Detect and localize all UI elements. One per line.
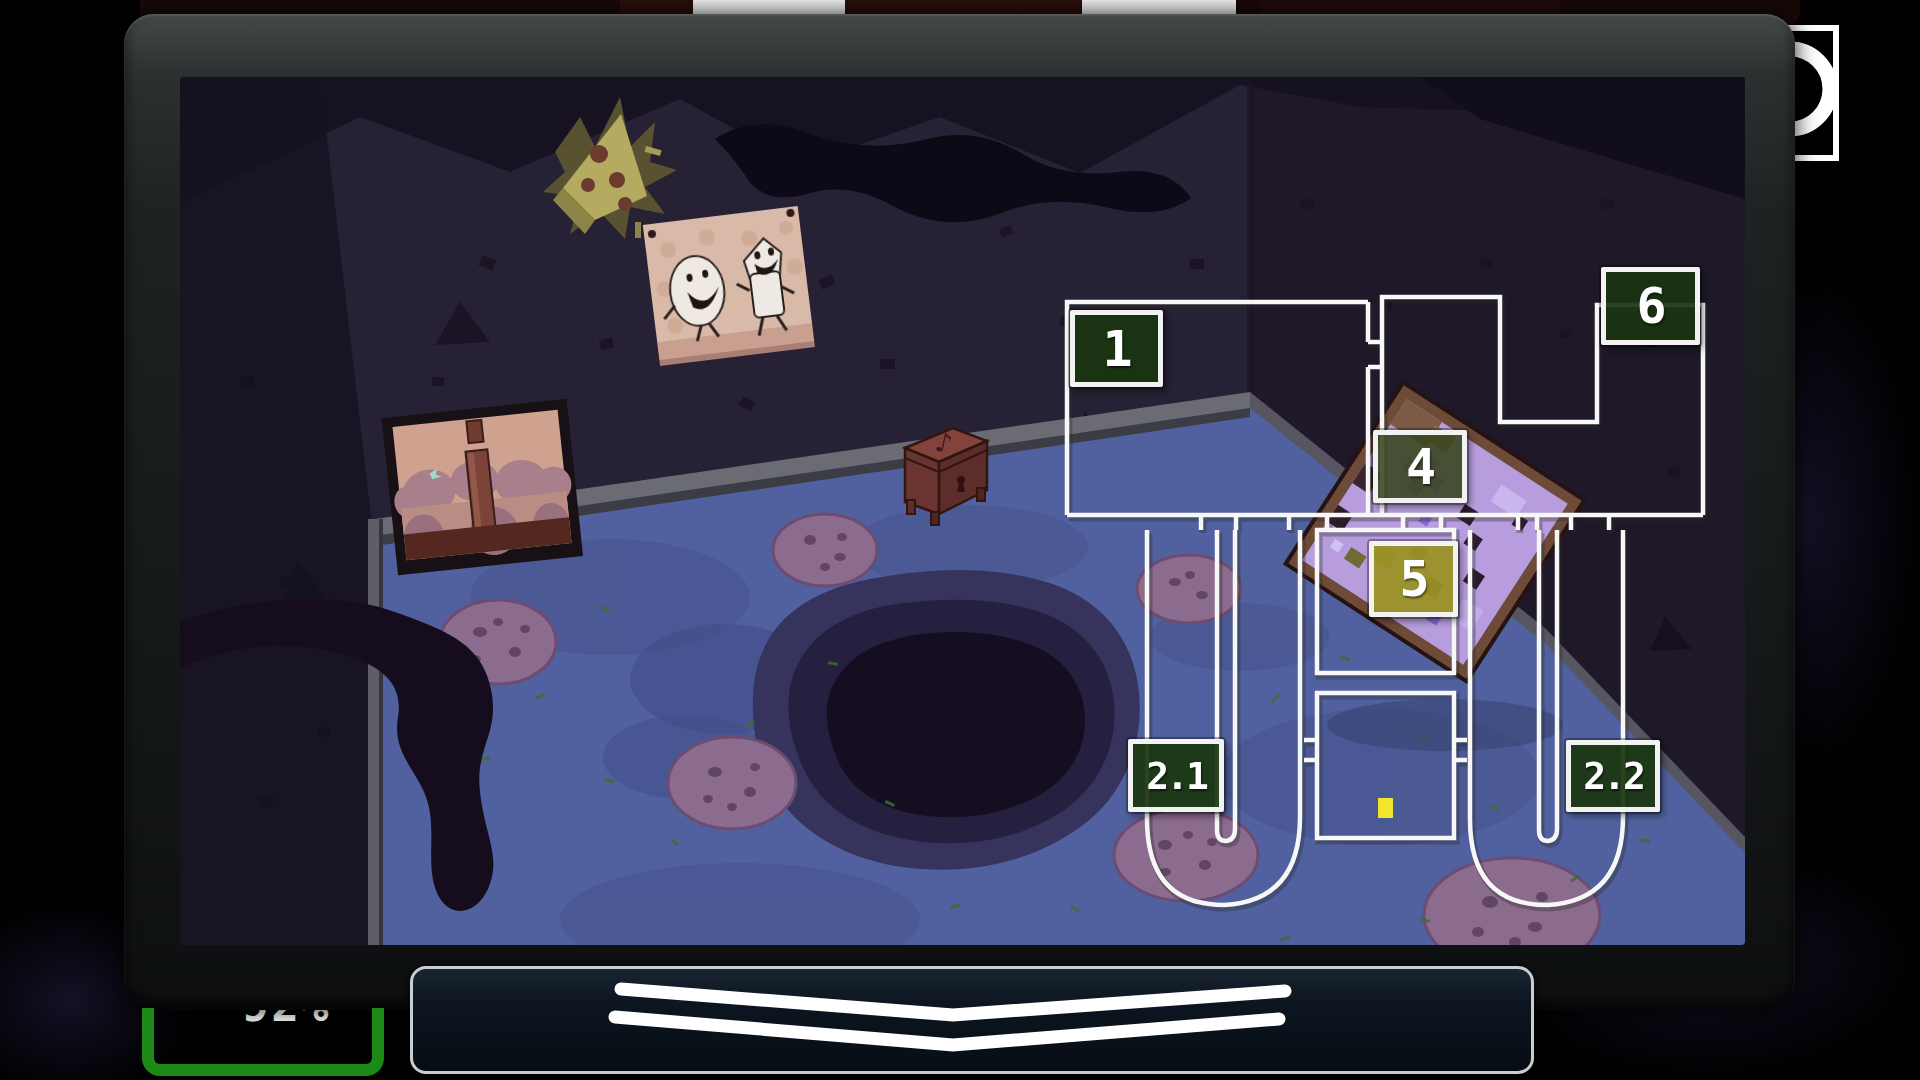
camera-button-4[interactable]: 4 (1373, 430, 1467, 503)
camera-button-6[interactable]: 6 (1601, 267, 1700, 345)
camera-screen: ♪ (180, 77, 1745, 945)
camera-label-text: 1 (1102, 320, 1130, 378)
game-root: 92% (0, 0, 1920, 1080)
player-marker (1378, 798, 1393, 818)
camera-label-text: 2.1 (1146, 754, 1206, 798)
camera-flip-bar[interactable] (410, 966, 1534, 1074)
double-chevron-down-icon (413, 969, 1525, 1065)
power-indicator-bracket (142, 1008, 384, 1076)
camera-label-text: 2.2 (1583, 754, 1643, 798)
camera-button-2-2[interactable]: 2.2 (1566, 740, 1660, 812)
camera-label-text: 4 (1406, 438, 1434, 496)
camera-button-5-selected[interactable]: 5 (1369, 541, 1458, 617)
camera-label-text: 6 (1636, 277, 1664, 335)
camera-button-1[interactable]: 1 (1070, 310, 1163, 387)
camera-button-2-1[interactable]: 2.1 (1128, 739, 1224, 812)
camera-label-text: 5 (1399, 550, 1427, 608)
camera-map (180, 77, 1745, 945)
